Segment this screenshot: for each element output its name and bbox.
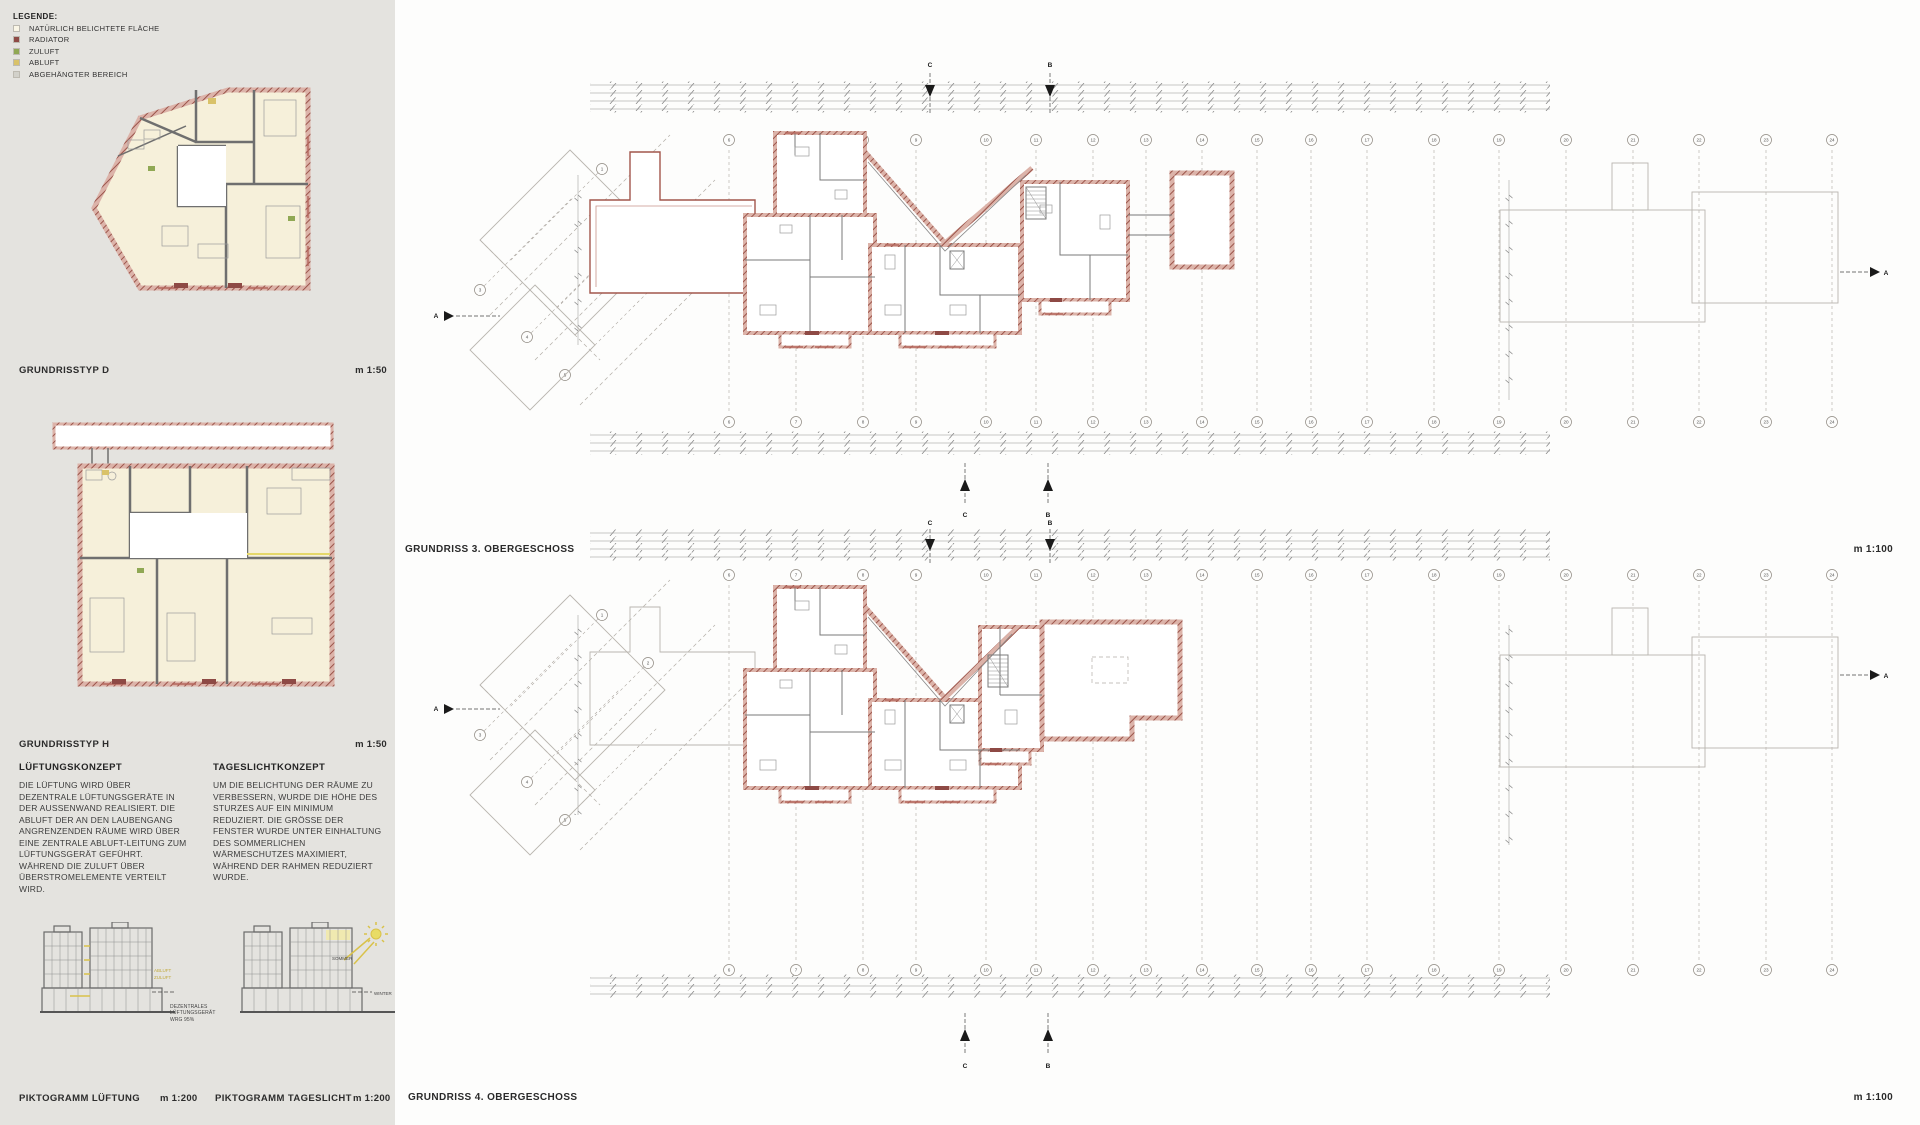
typ-d-label: Grundrisstyp D — [19, 365, 109, 376]
svg-text:A: A — [434, 313, 439, 320]
svg-text:24: 24 — [1829, 138, 1835, 143]
svg-text:16: 16 — [1308, 573, 1314, 578]
svg-text:6: 6 — [728, 573, 731, 578]
svg-text:24: 24 — [1829, 573, 1835, 578]
svg-text:13: 13 — [1143, 420, 1149, 425]
svg-text:7: 7 — [795, 420, 798, 425]
zuluft-tag: Zuluft — [154, 975, 171, 980]
svg-text:14: 14 — [1199, 138, 1205, 143]
svg-text:18: 18 — [1431, 420, 1437, 425]
svg-text:A: A — [434, 706, 439, 713]
svg-text:3: 3 — [479, 288, 482, 293]
svg-text:10: 10 — [983, 420, 989, 425]
svg-text:4: 4 — [526, 780, 529, 785]
pictogram-daylight-label: Piktogramm Tageslicht — [215, 1093, 352, 1104]
legend-color-chip — [13, 25, 20, 32]
legend-color-chip — [13, 71, 20, 78]
abluft-tag: Abluft — [154, 968, 172, 973]
svg-text:8: 8 — [862, 420, 865, 425]
svg-text:10: 10 — [983, 138, 989, 143]
svg-text:17: 17 — [1364, 420, 1370, 425]
floorplan-og3: 6677889910101111121213131414151516161717… — [340, 55, 1920, 525]
svg-text:13: 13 — [1143, 573, 1149, 578]
svg-text:17: 17 — [1364, 138, 1370, 143]
svg-text:16: 16 — [1308, 420, 1314, 425]
svg-text:12: 12 — [1090, 420, 1096, 425]
pictogram-ventilation: Abluft Zuluft — [40, 922, 175, 1024]
floorplan-og4: 6677889910101111121213131414151516161717… — [340, 515, 1920, 1080]
svg-text:1: 1 — [601, 613, 604, 618]
svg-text:9: 9 — [915, 420, 918, 425]
svg-text:7: 7 — [795, 573, 798, 578]
svg-text:A: A — [1884, 270, 1889, 277]
svg-text:12: 12 — [1090, 138, 1096, 143]
legend-items: natürlich belichtete FlächeRadiatorZuluf… — [13, 24, 159, 79]
svg-text:19: 19 — [1496, 138, 1502, 143]
svg-text:17: 17 — [1364, 968, 1370, 973]
legend-color-chip — [13, 36, 20, 43]
svg-text:12: 12 — [1090, 573, 1096, 578]
svg-text:19: 19 — [1496, 420, 1502, 425]
svg-text:21: 21 — [1630, 420, 1636, 425]
typ-d-caption: Grundrisstyp D m 1:50 — [19, 365, 387, 376]
svg-text:9: 9 — [915, 573, 918, 578]
svg-text:24: 24 — [1829, 420, 1835, 425]
svg-text:21: 21 — [1630, 138, 1636, 143]
legend-color-chip — [13, 48, 20, 55]
svg-text:8: 8 — [862, 968, 865, 973]
svg-text:12: 12 — [1090, 968, 1096, 973]
ventilation-concept-heading: Lüftungskonzept — [19, 762, 189, 773]
svg-text:21: 21 — [1630, 573, 1636, 578]
svg-text:11: 11 — [1034, 138, 1039, 143]
svg-text:6: 6 — [728, 968, 731, 973]
svg-text:7: 7 — [795, 968, 798, 973]
svg-text:3: 3 — [479, 733, 482, 738]
svg-text:4: 4 — [526, 335, 529, 340]
svg-text:22: 22 — [1696, 420, 1702, 425]
typ-h-floorplan — [42, 418, 342, 698]
og4-dimension-chains — [575, 530, 1551, 998]
og4-building — [745, 587, 1180, 802]
ventilation-annotation: Dezentrales Lüftungsgerät WRG 95% — [170, 1004, 216, 1023]
svg-text:15: 15 — [1254, 420, 1260, 425]
svg-text:15: 15 — [1254, 573, 1260, 578]
typ-h-caption: Grundrisstyp H m 1:50 — [19, 739, 387, 750]
legend-item: natürlich belichtete Fläche — [13, 24, 159, 33]
legend-title: Legende: — [13, 12, 159, 21]
svg-text:18: 18 — [1431, 573, 1437, 578]
legend-item-label: Radiator — [29, 35, 69, 44]
svg-text:C: C — [928, 62, 933, 69]
legend-item-label: Zuluft — [29, 47, 60, 56]
svg-text:23: 23 — [1763, 968, 1769, 973]
sidebar-bottom-captions: Piktogramm Lüftung m 1:200 Piktogramm Ta… — [0, 1093, 395, 1107]
legend-item: Zuluft — [13, 47, 159, 56]
svg-text:22: 22 — [1696, 573, 1702, 578]
og4-scale: m 1:100 — [1854, 1092, 1893, 1103]
svg-text:20: 20 — [1563, 968, 1569, 973]
svg-text:19: 19 — [1496, 968, 1502, 973]
sidebar-panel: Legende: natürlich belichtete FlächeRadi… — [0, 0, 395, 1125]
svg-text:B: B — [1048, 520, 1053, 527]
svg-text:10: 10 — [983, 573, 989, 578]
architectural-sheet: { "sheet": { "background": "#fdfdfc", "s… — [0, 0, 1920, 1125]
svg-text:14: 14 — [1199, 573, 1205, 578]
svg-text:23: 23 — [1763, 420, 1769, 425]
svg-text:20: 20 — [1563, 420, 1569, 425]
svg-text:8: 8 — [862, 573, 865, 578]
svg-text:B: B — [1046, 1063, 1051, 1070]
ventilation-concept: Lüftungskonzept Die Lüftung wird über de… — [19, 762, 189, 895]
svg-text:15: 15 — [1254, 968, 1260, 973]
svg-text:21: 21 — [1630, 968, 1636, 973]
svg-text:9: 9 — [915, 968, 918, 973]
svg-text:23: 23 — [1763, 573, 1769, 578]
svg-text:20: 20 — [1563, 138, 1569, 143]
svg-text:16: 16 — [1308, 968, 1314, 973]
legend: Legende: natürlich belichtete FlächeRadi… — [13, 12, 159, 79]
svg-text:15: 15 — [1254, 138, 1260, 143]
pictogram-ventilation-label: Piktogramm Lüftung — [19, 1093, 140, 1104]
svg-text:14: 14 — [1199, 968, 1205, 973]
typ-d-floorplan — [78, 76, 326, 308]
svg-text:10: 10 — [983, 968, 989, 973]
svg-text:A: A — [1884, 673, 1889, 680]
svg-text:17: 17 — [1364, 573, 1370, 578]
og3-building — [590, 133, 1232, 347]
svg-text:9: 9 — [915, 138, 918, 143]
pictogram-daylight-scale: m 1:200 — [353, 1093, 390, 1104]
svg-text:11: 11 — [1034, 968, 1039, 973]
svg-text:16: 16 — [1308, 138, 1314, 143]
svg-text:18: 18 — [1431, 968, 1437, 973]
svg-text:2: 2 — [647, 661, 650, 666]
legend-item: Abluft — [13, 58, 159, 67]
typ-h-label: Grundrisstyp H — [19, 739, 109, 750]
legend-item: Radiator — [13, 35, 159, 44]
svg-text:23: 23 — [1763, 138, 1769, 143]
svg-text:C: C — [963, 1063, 968, 1070]
svg-text:24: 24 — [1829, 968, 1835, 973]
svg-text:22: 22 — [1696, 138, 1702, 143]
svg-text:6: 6 — [728, 138, 731, 143]
legend-item-label: Abluft — [29, 58, 60, 67]
svg-text:C: C — [928, 520, 933, 527]
svg-text:11: 11 — [1034, 573, 1039, 578]
svg-text:19: 19 — [1496, 573, 1502, 578]
svg-text:6: 6 — [728, 420, 731, 425]
pictogram-ventilation-scale: m 1:200 — [160, 1093, 197, 1104]
og4-title: Grundriss 4. Obergeschoss — [408, 1092, 577, 1103]
svg-text:20: 20 — [1563, 573, 1569, 578]
svg-text:18: 18 — [1431, 138, 1437, 143]
ventilation-concept-body: Die Lüftung wird über dezentrale Lüftung… — [19, 780, 189, 895]
legend-color-chip — [13, 59, 20, 66]
legend-item-label: natürlich belichtete Fläche — [29, 24, 159, 33]
svg-text:22: 22 — [1696, 968, 1702, 973]
svg-text:13: 13 — [1143, 968, 1149, 973]
svg-text:13: 13 — [1143, 138, 1149, 143]
svg-text:B: B — [1048, 62, 1053, 69]
svg-text:1: 1 — [601, 167, 604, 172]
svg-text:11: 11 — [1034, 420, 1039, 425]
svg-text:14: 14 — [1199, 420, 1205, 425]
